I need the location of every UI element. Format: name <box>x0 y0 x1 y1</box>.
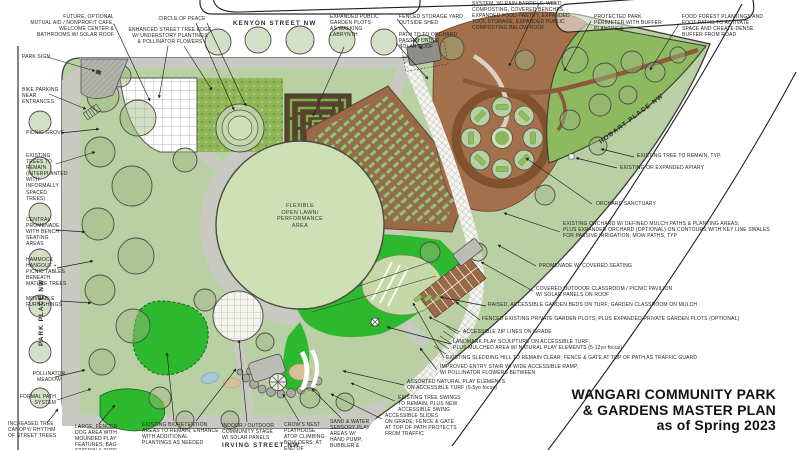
annotation-existing-trees: EXISTING TREES TO REMAIN (INTERPLANTED W… <box>26 153 76 202</box>
annotation-central-promenade: CENTRAL PROMENADE WITH BENCH SEATING ARE… <box>26 217 76 247</box>
street-name-park-place: PARK PLACE NW <box>38 279 45 346</box>
circle-of-peace <box>216 104 264 152</box>
annotation-promenade-seating: PROMENADE W/ COVERED SEATING <box>539 263 649 269</box>
annotation-outdoor-classroom: COVERED OUTDOOR CLASSROOM / PICNIC PAVIL… <box>536 286 696 298</box>
annotation-protected-perimeter: PROTECTED PARK PERIMETER WITH BUFFER PLA… <box>594 14 674 32</box>
annotation-orchard-sanctuary: ORCHARD SANCTUARY <box>596 201 676 207</box>
play-sculpture <box>371 318 379 326</box>
annotation-zip-lines: ACCESSIBLE ZIP LINES ON GRADE <box>463 329 573 335</box>
annotation-path-to-orchard: PATH TO TO ORCHARD PASSES UNDER SOLAR RO… <box>399 32 469 50</box>
annotation-bike-parking: BIKE PARKING NEAR ENTRANCES <box>22 87 72 105</box>
annotation-farm-system: SYSTEM, W/ RAIN BARRELS, WEED COMPOSTING… <box>472 1 582 31</box>
annotation-park-sign: PARK SIGN <box>22 54 72 60</box>
annotation-street-tree-edge: ENHANCED STREET TREE EDGE W/ UNDERSTORY … <box>122 27 218 45</box>
title-line-3: as of Spring 2023 <box>496 418 776 434</box>
annotation-formal-path: FORMAL PATH SYSTEM <box>8 394 56 406</box>
plaza-circle <box>213 291 263 341</box>
annotation-raised-beds: RAISED, ACCESSIBLE GARDEN BEDS ON TURF; … <box>488 302 718 308</box>
annotation-food-forest: FOOD FOREST PLANTINGS AND FOOT PATHS TO … <box>682 14 782 38</box>
annotation-storage-yard: FENCED STORAGE YARD OUTSIDE SHED <box>399 14 469 26</box>
annotation-entry-stair: IMPROVED ENTRY STAIR W/ WIDE ACCESSIBLE … <box>440 364 610 376</box>
crows-nest-wheel <box>270 374 287 391</box>
title-line-2: & GARDENS MASTER PLAN <box>496 403 776 419</box>
title-block: WANGARI COMMUNITY PARK & GARDENS MASTER … <box>496 387 776 434</box>
annotation-existing-tree-typ: EXISTING TREE TO REMAIN, TYP. <box>637 153 747 159</box>
annotation-hammock-hangout: HAMMOCK HANGOUT + PICNIC TABLES BENEATH … <box>26 257 78 287</box>
annotation-apiary: EXISTING OR EXPANDED APIARY <box>620 165 730 171</box>
annotation-sand-water: SAND & WATER SENSORY PLAY AREAS W/ HAND … <box>330 419 380 449</box>
annotation-existing-orchard: EXISTING ORCHARD W/ DEFINED MULCH PATHS … <box>563 221 798 239</box>
apiary-hive <box>569 154 574 159</box>
annotation-play-sculpture: LANDMARK PLAY SCULPTURE ON ACCESSIBLE TU… <box>453 339 653 351</box>
annotation-slides: ACCESSIBLE SLIDES ON GRADE; FENCE & GATE… <box>385 413 475 437</box>
annotation-pollinator-meadow: POLLINATOR MEADOW <box>26 371 72 383</box>
annotation-moveable-furnishings: MOVEABLE FURNISHINGS <box>26 296 78 308</box>
annotation-picnic-grove: PICNIC GROVE <box>26 130 76 136</box>
street-name-irving: IRVING STREET NW <box>222 442 300 449</box>
annotation-future-cafe: FUTURE, OPTIONAL MUTUAL AID / NONPROFIT … <box>28 14 114 38</box>
annotation-community-stage: INDOOR / OUTDOOR COMMUNITY STAGE W/ SOLA… <box>222 423 288 441</box>
raised-bed-circle <box>461 97 543 179</box>
annotation-sledding-hill: EXISTING SLEDDING HILL TO REMAIN CLEAR; … <box>446 355 736 361</box>
open-lawn-label: FLEXIBLE OPEN LAWN/ PERFORMANCE AREA <box>255 203 345 229</box>
annotation-private-plots: FENCED EXISTING PRIVATE GARDEN PLOTS, PL… <box>482 316 772 322</box>
annotation-garden-labyrinth: EXPANDED PUBLIC GARDEN PLOTS AS WALKING … <box>330 14 390 38</box>
annotation-tree-swings: EXISTING TREE SWINGS TO REMAIN, PLUS NEW… <box>398 395 478 413</box>
annotation-bioretention: EXISTING BIORETENTION AREAS TO REMAIN; E… <box>142 422 228 446</box>
master-plan-page: FUTURE, OPTIONAL MUTUAL AID / NONPROFIT … <box>0 0 800 450</box>
annotation-circle-of-peace: CIRCLE OF PEACE <box>150 16 214 22</box>
annotation-dog-area: LARGE, FENCED DOG AREA WITH MOUNDED PLAY… <box>75 424 131 450</box>
street-name-kenyon: KENYON STREET NW <box>233 20 316 27</box>
title-line-1: WANGARI COMMUNITY PARK <box>496 387 776 403</box>
annotation-increased-canopy: INCREASED TREE CANOPY/ RHYTHM OF STREET … <box>8 421 66 439</box>
